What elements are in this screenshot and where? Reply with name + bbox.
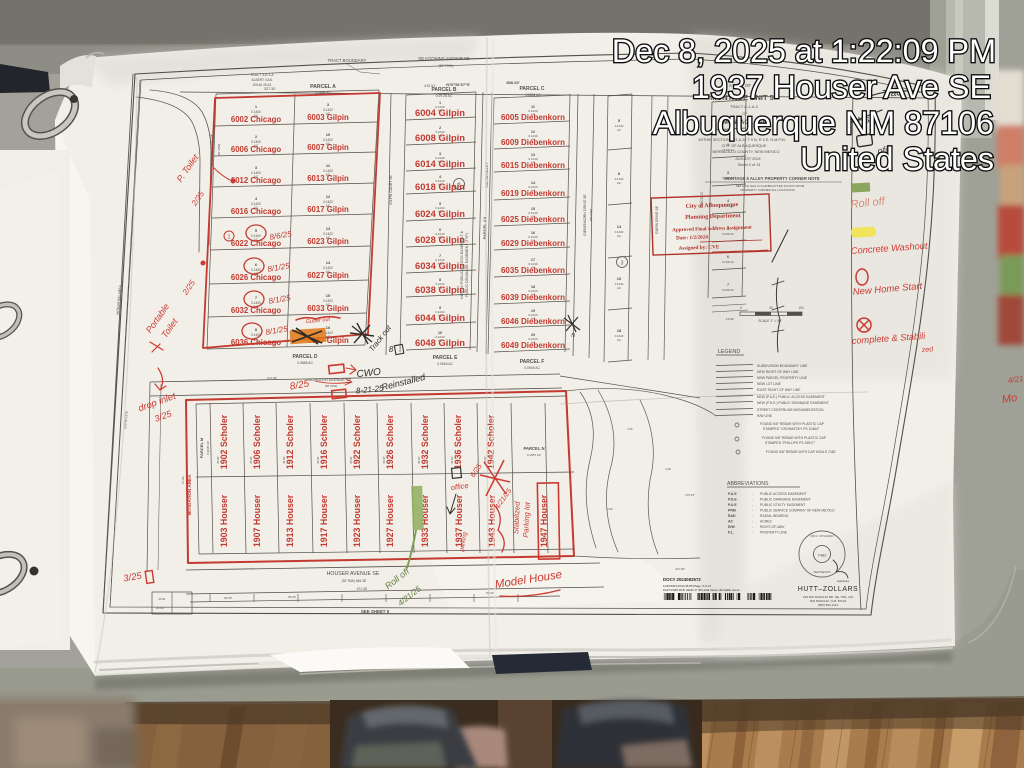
svg-text:47.93’: 47.93’ (181, 476, 185, 485)
svg-text:PARCEL C: PARCEL C (519, 86, 544, 92)
svg-text:55.00’: 55.00’ (486, 591, 495, 595)
svg-text:2: 2 (458, 183, 461, 189)
svg-text:AC: AC (326, 236, 331, 240)
svg-text:P.U.E: P.U.E (728, 503, 737, 507)
svg-text:United States: United States (800, 141, 994, 177)
svg-text:PARCEL D: PARCEL D (292, 354, 317, 360)
svg-text:P.A.E: P.A.E (728, 492, 737, 496)
svg-text:zed: zed (921, 346, 935, 354)
svg-text:AC: AC (326, 335, 331, 339)
svg-text:Date: 1/2/2024: Date: 1/2/2024 (676, 234, 708, 241)
svg-text:1947 Houser: 1947 Houser (539, 494, 549, 547)
svg-text:Albuquerque NM 87106: Albuquerque NM 87106 (653, 105, 994, 141)
svg-text:Sheet 3 of 13: Sheet 3 of 13 (738, 163, 761, 167)
svg-text:SEE SHEET 6: SEE SHEET 6 (361, 609, 390, 614)
svg-text:(52’ R/W) 848.38’: (52’ R/W) 848.38’ (342, 579, 367, 583)
svg-text:PUBLIC DRAINAGE EASEMENT (TYP): PUBLIC DRAINAGE EASEMENT (TYP) (465, 233, 469, 297)
svg-text:FOUND 5/8” REBAR WITH PLASTIC: FOUND 5/8” REBAR WITH PLASTIC CAP (760, 422, 825, 426)
svg-text:858.25’: 858.25’ (506, 80, 519, 85)
svg-text:TRACT 3-A-1-A: TRACT 3-A-1-A (250, 73, 274, 77)
svg-text:AC: AC (617, 181, 621, 185)
svg-text:(50’ R/W): (50’ R/W) (438, 64, 453, 68)
svg-text:0: 0 (740, 306, 742, 310)
svg-text:15: 15 (326, 293, 331, 298)
svg-text:173.97’: 173.97’ (685, 493, 695, 497)
svg-text:AC: AC (254, 144, 259, 148)
svg-text:45.00’: 45.00’ (156, 606, 165, 610)
svg-text:Parking lot: Parking lot (521, 501, 532, 538)
svg-text:0.3035 AC: 0.3035 AC (206, 440, 210, 455)
svg-text:14: 14 (326, 260, 331, 265)
svg-text:(50’ R/W): (50’ R/W) (589, 209, 593, 222)
svg-text:DIEBENKORN DRIVE SE: DIEBENKORN DRIVE SE (583, 194, 587, 236)
svg-text:AUGUST 2024: AUGUST 2024 (735, 157, 760, 161)
svg-text:PARCEL F: PARCEL F (520, 359, 545, 365)
svg-text:AC: AC (326, 173, 331, 177)
svg-text:AC: AC (326, 204, 331, 208)
svg-text:PUBLIC SERVICE COMPANY OF NEW: PUBLIC SERVICE COMPANY OF NEW MEXICO (760, 509, 835, 513)
svg-text:3: 3 (621, 261, 624, 267)
svg-text:1936 Scholer: 1936 Scholer (453, 414, 463, 469)
svg-text:-: - (752, 509, 753, 513)
svg-text:-: - (752, 514, 753, 518)
svg-text:RIGHT-OF-WAY: RIGHT-OF-WAY (760, 525, 785, 529)
svg-text:0.09.28 AC: 0.09.28 AC (436, 94, 453, 98)
svg-text:471.45’: 471.45’ (357, 587, 368, 591)
svg-text:1902 Scholer: 1902 Scholer (219, 414, 229, 469)
svg-text:0.1440 AC: 0.1440 AC (722, 260, 734, 264)
svg-text:PUBLIC ACCESS EASEMENT: PUBLIC ACCESS EASEMENT (760, 492, 807, 496)
svg-text:PLAT R:$25.00 B: 2024C P: 95: PLAT R:$25.00 B: 2024C P: 95 Linda Stove… (663, 588, 740, 592)
svg-text:NEW PARCEL PROPERTY LINE: NEW PARCEL PROPERTY LINE (757, 376, 808, 380)
svg-text:1903 Houser: 1903 Houser (219, 494, 229, 547)
svg-text:AC: AC (728, 520, 734, 524)
svg-text:MITIGATION AREA: MITIGATION AREA (187, 474, 192, 516)
svg-text:0.1957 AC: 0.1957 AC (527, 453, 542, 457)
svg-text:1916 Scholer: 1916 Scholer (319, 414, 329, 469)
svg-text:AC: AC (617, 234, 621, 238)
svg-text:CHICAGO ROAD SE: CHICAGO ROAD SE (210, 133, 214, 166)
svg-text:NEW (P.D.E.) PUBLIC DRAINAGE E: NEW (P.D.E.) PUBLIC DRAINAGE EASEMENT (757, 401, 829, 405)
svg-text:signature: signature (837, 579, 850, 583)
svg-text:1927 Houser: 1927 Houser (385, 494, 395, 547)
svg-text:ACRES: ACRES (760, 520, 772, 524)
svg-text:-: - (752, 492, 753, 496)
svg-text:45.00’: 45.00’ (216, 456, 220, 464)
svg-text:PNM: PNM (728, 509, 736, 513)
svg-text:PARCEL M: PARCEL M (199, 437, 204, 458)
svg-text:45.00’: 45.00’ (450, 456, 454, 464)
svg-text:DE KOONING AVENUE SE: DE KOONING AVENUE SE (418, 56, 470, 61)
svg-text:0.1440 AC: 0.1440 AC (722, 232, 734, 236)
svg-text:C26: C26 (607, 507, 613, 511)
svg-text:0.1440 AC: 0.1440 AC (722, 288, 734, 292)
svg-text:-: - (752, 525, 753, 529)
svg-text:1912 Scholer: 1912 Scholer (285, 414, 295, 469)
svg-text:SUBDIVISION BOUNDARY LINE: SUBDIVISION BOUNDARY LINE (757, 364, 808, 368)
svg-text:PUBLIC DRAINAGE EASEMENT: PUBLIC DRAINAGE EASEMENT (760, 498, 811, 502)
svg-text:AC: AC (617, 338, 621, 342)
svg-text:45.00’: 45.00’ (282, 456, 286, 464)
svg-text:35.00’: 35.00’ (288, 595, 297, 599)
svg-text:3: 3 (727, 171, 729, 175)
svg-text:0.0888 AC: 0.0888 AC (297, 361, 313, 365)
svg-text:BERNALILLO COUNTY, NEW MEXICO: BERNALILLO COUNTY, NEW MEXICO (712, 150, 779, 154)
svg-text:1917 Houser: 1917 Houser (319, 494, 329, 547)
svg-text:-: - (752, 498, 753, 502)
svg-text:NEW (P.A.E.) PUBLIC ACCESS EAS: NEW (P.A.E.) PUBLIC ACCESS EASEMENT (757, 395, 825, 399)
svg-text:AC: AC (254, 114, 259, 118)
svg-text:16: 16 (617, 276, 622, 281)
svg-text:ALBERT GAIL: ALBERT GAIL (251, 78, 272, 82)
svg-text:1: 1 (227, 235, 230, 241)
svg-text:DOC# 2024082572: DOC# 2024082572 (663, 577, 701, 582)
svg-text:P.D.E: P.D.E (728, 498, 737, 502)
svg-text:EXIST RIGHT OF WAY LINE: EXIST RIGHT OF WAY LINE (757, 388, 801, 392)
svg-text:100: 100 (798, 306, 804, 310)
svg-text:1913 Houser: 1913 Houser (285, 494, 295, 547)
svg-text:PARCEL A: PARCEL A (310, 84, 336, 90)
svg-text:1926 Scholer: 1926 Scholer (385, 414, 395, 469)
svg-text:CITY OF ALBUQUERQUE: CITY OF ALBUQUERQUE (722, 144, 767, 148)
svg-text:R/W LINE: R/W LINE (757, 414, 773, 418)
svg-text:1906 Scholer: 1906 Scholer (252, 414, 262, 469)
svg-text:12: 12 (326, 194, 331, 199)
svg-text:16: 16 (326, 325, 331, 330)
svg-text:6: 6 (727, 255, 729, 259)
svg-text:45.00’: 45.00’ (249, 456, 253, 464)
svg-text:RAD: RAD (728, 514, 736, 518)
svg-text:STREET CENTERLINE MONUMENTATIO: STREET CENTERLINE MONUMENTATION (757, 408, 824, 412)
svg-text:STAMPED “PHILLIPS PS 15917”: STAMPED “PHILLIPS PS 15917” (765, 441, 815, 445)
svg-text:10: 10 (326, 132, 331, 137)
svg-text:AC: AC (617, 286, 621, 290)
svg-text:ABBREVIATIONS: ABBREVIATIONS (727, 481, 769, 487)
svg-text:Mo: Mo (1001, 392, 1018, 406)
svg-text:0.0948 AC: 0.0948 AC (524, 366, 540, 370)
svg-text:NEW LOT LINE: NEW LOT LINE (757, 382, 782, 386)
svg-text:GURIN DRIVE SE: GURIN DRIVE SE (655, 205, 659, 233)
svg-text:FOUND 5/8” REBAR WITH CAP HZNL: FOUND 5/8” REBAR WITH CAP HZNLS 7482 (766, 450, 836, 454)
svg-text:327.30’: 327.30’ (264, 87, 276, 91)
svg-text:NEW MEXICO: NEW MEXICO (813, 570, 830, 574)
svg-text:STAMPED “CROMATZKY PS 10464”: STAMPED “CROMATZKY PS 10464” (763, 427, 819, 431)
svg-text:NEW RIGHT OF WAY LINE: NEW RIGHT OF WAY LINE (757, 370, 799, 374)
svg-text:LEGEND: LEGEND (718, 349, 741, 355)
svg-text:-: - (752, 531, 753, 535)
svg-text:PUBLIC UTILITY EASEMENT: PUBLIC UTILITY EASEMENT (760, 503, 805, 507)
svg-text:271.09’: 271.09’ (267, 376, 277, 380)
svg-text:N: N (571, 333, 575, 339)
svg-text:8: 8 (389, 345, 394, 354)
svg-text:-: - (752, 503, 753, 507)
svg-text:1932 Scholer: 1932 Scholer (420, 414, 430, 469)
svg-text:45.00’: 45.00’ (224, 596, 233, 600)
svg-text:15.00’: 15.00’ (726, 317, 735, 321)
svg-text:(50’ R/W): (50’ R/W) (325, 384, 338, 388)
svg-text:7482: 7482 (818, 553, 828, 558)
svg-text:45.00’: 45.00’ (417, 456, 421, 464)
svg-text:45.00’: 45.00’ (316, 456, 320, 464)
svg-text:NEW 20’ PUBLIC ACCESS EASEMENT: NEW 20’ PUBLIC ACCESS EASEMENT & (460, 231, 464, 299)
svg-text:AC: AC (254, 206, 259, 210)
svg-text:FOUND 5/8” REBAR WITH PLASTIC: FOUND 5/8” REBAR WITH PLASTIC CAP (762, 436, 827, 440)
svg-text:AC: AC (326, 112, 331, 116)
svg-text:PARCEL N: PARCEL N (523, 446, 544, 451)
svg-text:(50’ R/W): (50’ R/W) (217, 144, 221, 157)
svg-text:AC: AC (617, 128, 621, 132)
svg-text:C15: C15 (627, 427, 633, 431)
svg-text:PARCEL E: PARCEL E (433, 355, 458, 361)
svg-text:14: 14 (617, 224, 622, 229)
svg-text:R/W: R/W (728, 525, 736, 529)
svg-text:AC: AC (326, 142, 331, 146)
svg-text:(505) 892-1141: (505) 892-1141 (818, 603, 839, 607)
svg-text:C18: C18 (665, 467, 671, 471)
svg-text:0.0948 AC: 0.0948 AC (437, 362, 453, 366)
svg-text:TRACT BOUNDARY: TRACT BOUNDARY (328, 58, 367, 63)
svg-text:1907 Houser: 1907 Houser (252, 494, 262, 547)
svg-text:40.00’: 40.00’ (158, 597, 166, 601)
svg-text:AC: AC (326, 270, 331, 274)
svg-text:Stabilized: Stabilized (511, 501, 522, 535)
svg-text:PARCEL B: PARCEL B (431, 87, 456, 93)
svg-text:AC: AC (254, 175, 259, 179)
svg-text:1922 Scholer: 1922 Scholer (352, 414, 362, 469)
svg-text:HUTT–ZOLLARS: HUTT–ZOLLARS (798, 586, 858, 593)
svg-text:PROPERTY LINE: PROPERTY LINE (760, 531, 788, 535)
svg-text:13: 13 (326, 226, 331, 231)
svg-text:471.50’: 471.50’ (675, 567, 685, 571)
svg-text:-: - (752, 520, 753, 524)
svg-text:50: 50 (769, 306, 773, 310)
svg-text:KIM C. STOLZMAN: KIM C. STOLZMAN (811, 534, 834, 538)
svg-text:HOUSER AVENUE SE: HOUSER AVENUE SE (327, 571, 380, 577)
svg-text:RADIAL BEARING: RADIAL BEARING (760, 514, 789, 518)
svg-text:P.L.: P.L. (728, 531, 734, 535)
svg-text:45.00’: 45.00’ (349, 456, 353, 464)
svg-text:PROPERTY CORNER ALL LOCATIONS.: PROPERTY CORNER ALL LOCATIONS. (741, 188, 796, 192)
svg-text:Dec 8, 2025 at 1:22:09 PM: Dec 8, 2025 at 1:22:09 PM (612, 33, 996, 69)
svg-text:7: 7 (727, 283, 729, 287)
svg-text:1937 Houser Ave SE: 1937 Houser Ave SE (692, 69, 991, 105)
svg-text:AC: AC (326, 303, 331, 307)
svg-text:SCALE 1” = 50’: SCALE 1” = 50’ (758, 319, 782, 323)
svg-text:18: 18 (617, 328, 622, 333)
svg-text:1923 Houser: 1923 Houser (352, 494, 362, 547)
svg-text:45.00’: 45.00’ (382, 456, 386, 464)
